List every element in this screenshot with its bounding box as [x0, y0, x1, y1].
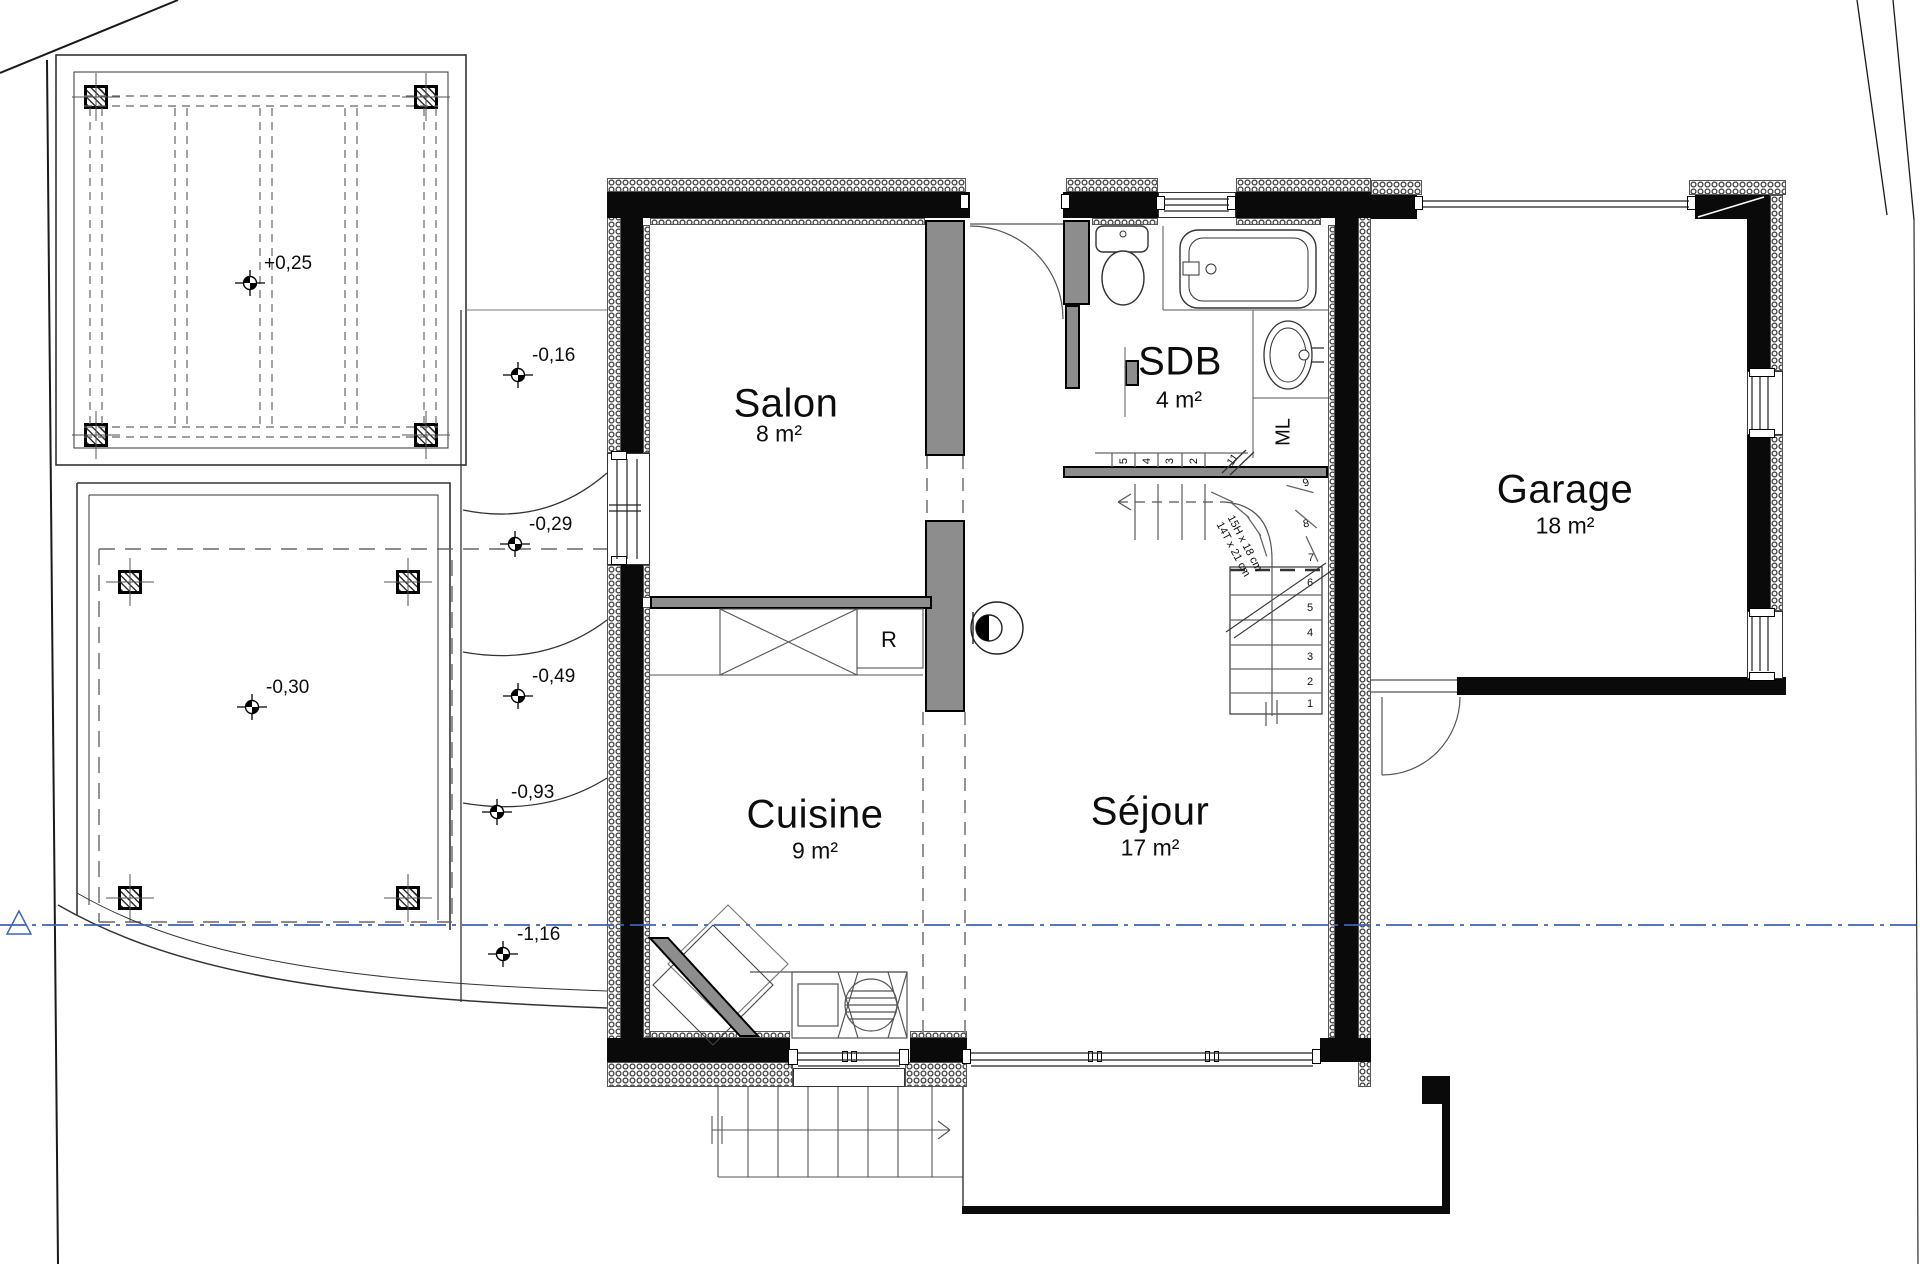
toilet-icon — [1096, 226, 1148, 305]
room-area-salon: 8 m² — [756, 421, 802, 448]
garden-steps — [461, 310, 607, 1002]
room-area-sdb: 4 m² — [1156, 387, 1202, 414]
fridge-label: R — [881, 627, 897, 653]
elevation-deck: +0,25 — [264, 253, 312, 275]
garage-door-icon — [1371, 680, 1460, 775]
room-label-sejour: Séjour — [1091, 790, 1210, 835]
front-steps — [712, 1087, 963, 1206]
glazing-lines — [609, 197, 1768, 1066]
elevation-step2: -0,29 — [529, 514, 572, 536]
elevation-terrace: -0,30 — [266, 677, 309, 699]
floor-plan: Salon 8 m² Cuisine 9 m² Séjour 17 m² SDB… — [0, 0, 1920, 1264]
elevation-step1: -0,16 — [532, 345, 575, 367]
staircase — [1095, 450, 1334, 726]
entry-door-icon — [970, 224, 1063, 319]
kitchen-table-icon — [653, 905, 788, 1045]
room-label-cuisine: Cuisine — [747, 793, 884, 838]
stove-icon — [971, 602, 1023, 654]
deck-structure — [56, 55, 466, 465]
elevation-symbols — [235, 270, 533, 967]
linework — [0, 0, 1920, 1264]
elevation-step4: -0,93 — [511, 782, 554, 804]
elevation-step3: -0,49 — [532, 666, 575, 688]
property-boundary — [0, 0, 1918, 1264]
room-area-sejour: 17 m² — [1121, 835, 1180, 862]
corner-brace — [650, 938, 758, 1036]
elevation-step5: -1,16 — [517, 924, 560, 946]
washing-machine-label: ML — [1273, 418, 1296, 446]
room-label-sdb: SDB — [1138, 340, 1222, 385]
kitchen-sink-icon — [750, 972, 907, 1038]
room-label-garage: Garage — [1497, 468, 1633, 513]
room-area-garage: 18 m² — [1536, 513, 1595, 540]
bathtub-icon — [1163, 226, 1328, 310]
room-area-cuisine: 9 m² — [792, 838, 838, 865]
